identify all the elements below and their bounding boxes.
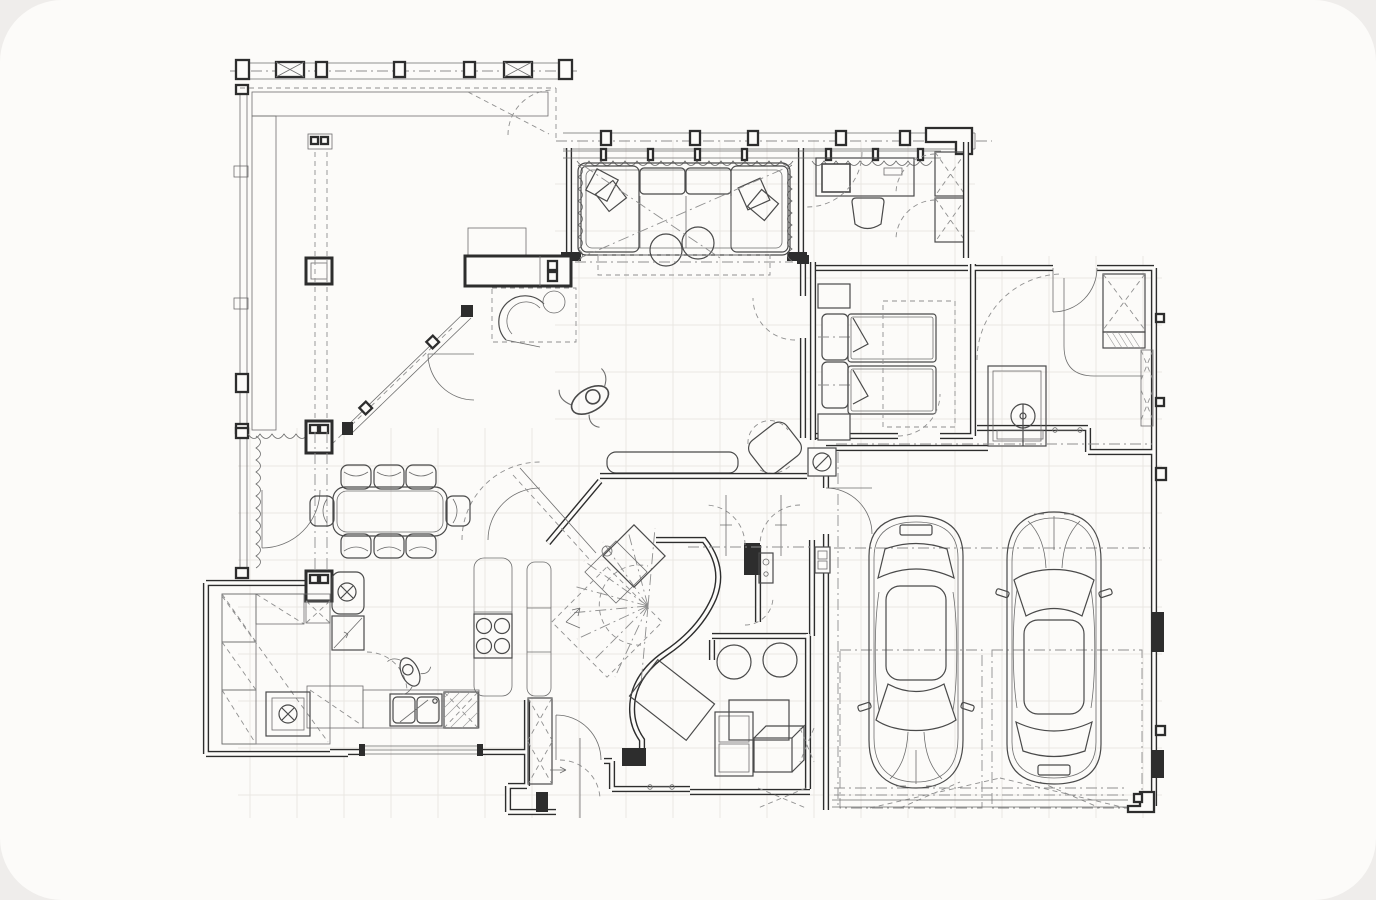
nightstand	[818, 284, 850, 308]
kitchen-window	[359, 744, 483, 756]
nightstand	[818, 414, 850, 440]
terrace-column	[306, 258, 332, 284]
gas-meter	[808, 448, 836, 476]
electrical-panel	[815, 547, 830, 573]
structural-column	[306, 421, 332, 453]
drawing-sheet	[0, 0, 1376, 900]
floor-plan-svg	[0, 0, 1376, 900]
floor-plan-canvas	[0, 0, 1376, 900]
